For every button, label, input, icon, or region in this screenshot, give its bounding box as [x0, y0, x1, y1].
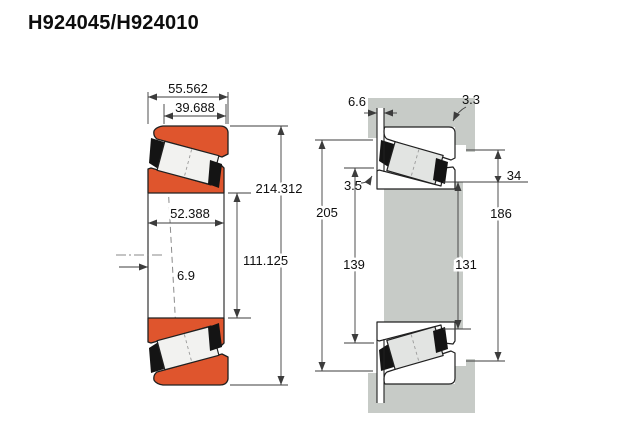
dim-shaft-abutment: 139	[343, 257, 365, 272]
dim-bore-diameter: 111.125	[243, 253, 288, 268]
bearing-drawing: 55.562 39.688 214.312 52.388 111.125 6.9	[0, 0, 640, 440]
dim-shaft-shoulder: 131	[455, 257, 477, 272]
dim-outer-diameter: 214.312	[256, 181, 303, 196]
dim-load-center: 6.9	[177, 268, 195, 283]
dim-cup-width: 39.688	[175, 100, 215, 115]
shaft	[384, 182, 463, 329]
dim-overall-width: 55.562	[168, 81, 208, 96]
dim-cone-corner-radius: 3.5	[344, 178, 362, 193]
leader-cone-radius	[361, 176, 372, 183]
dim-cone-overhang: 6.6	[348, 94, 366, 109]
dim-housing-bore: 205	[316, 205, 338, 220]
left-diagram-cross-section: 55.562 39.688 214.312 52.388 111.125 6.9	[116, 81, 303, 385]
dim-shoulder-step: 34	[507, 168, 521, 183]
dim-cone-width: 52.388	[170, 206, 210, 221]
drawing-page: H924045/H924010	[0, 0, 640, 440]
right-diagram-mounting: 6.6 3.3 3.5 205 139 131	[315, 92, 528, 413]
dim-cup-corner-radius: 3.3	[462, 92, 480, 107]
dim-housing-shoulder: 186	[490, 206, 512, 221]
